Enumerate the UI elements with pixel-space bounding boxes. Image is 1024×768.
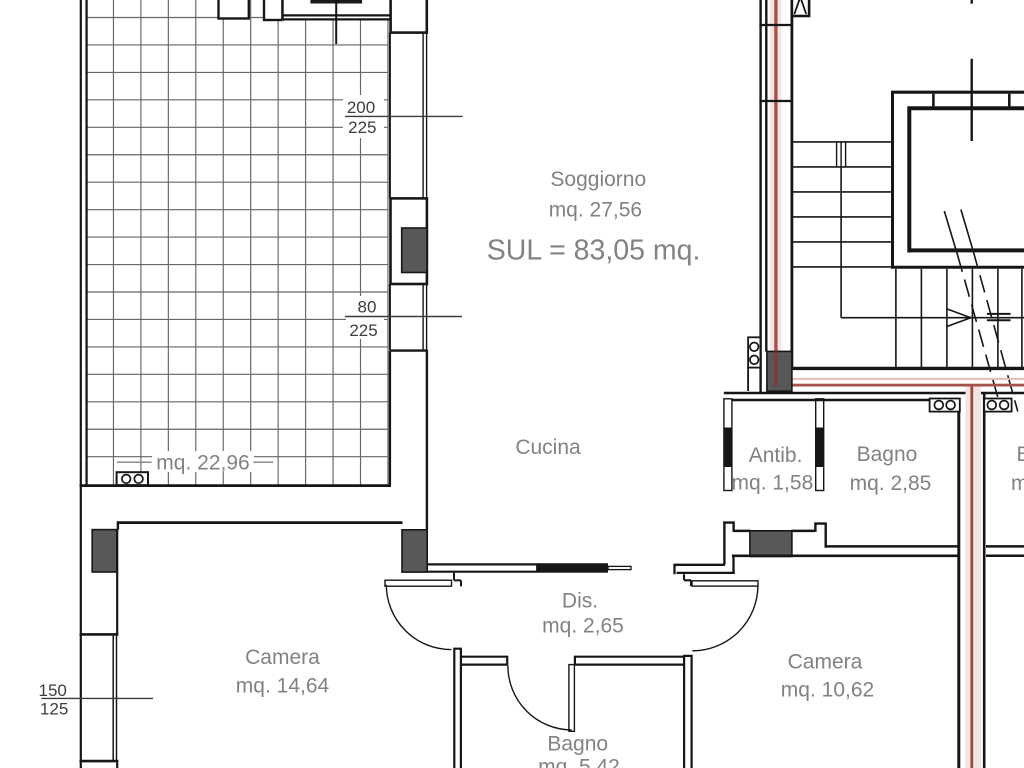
svg-text:125: 125 [40,699,68,718]
svg-text:Cucina: Cucina [515,436,581,459]
svg-text:225: 225 [349,321,377,340]
svg-text:SUL = 83,05 mq.: SUL = 83,05 mq. [487,235,701,267]
svg-text:mq. 10,62: mq. 10,62 [781,678,874,701]
svg-text:mq. 2,5: mq. 2,5 [1011,472,1024,495]
svg-text:mq. 14,64: mq. 14,64 [236,674,330,697]
svg-text:Bagno: Bagno [547,732,608,755]
svg-text:mq. 27,56: mq. 27,56 [549,199,642,222]
svg-text:mq. 1,58: mq. 1,58 [732,472,814,495]
svg-text:mq. 5,42: mq. 5,42 [538,755,620,768]
svg-text:225: 225 [348,118,376,137]
svg-text:Bagno: Bagno [857,443,918,466]
svg-text:Camera: Camera [788,650,863,673]
svg-text:200: 200 [347,98,375,117]
svg-text:Camera: Camera [245,646,320,669]
svg-text:Antib.: Antib. [749,444,803,467]
svg-text:Bagno: Bagno [1017,443,1024,466]
svg-text:mq. 22,96: mq. 22,96 [156,451,249,474]
svg-text:mq. 2,85: mq. 2,85 [850,472,932,495]
svg-text:Soggiorno: Soggiorno [550,168,646,191]
svg-text:150: 150 [39,681,67,700]
svg-text:80: 80 [358,297,377,316]
svg-text:mq. 2,65: mq. 2,65 [542,615,624,638]
svg-text:Dis.: Dis. [562,589,598,612]
